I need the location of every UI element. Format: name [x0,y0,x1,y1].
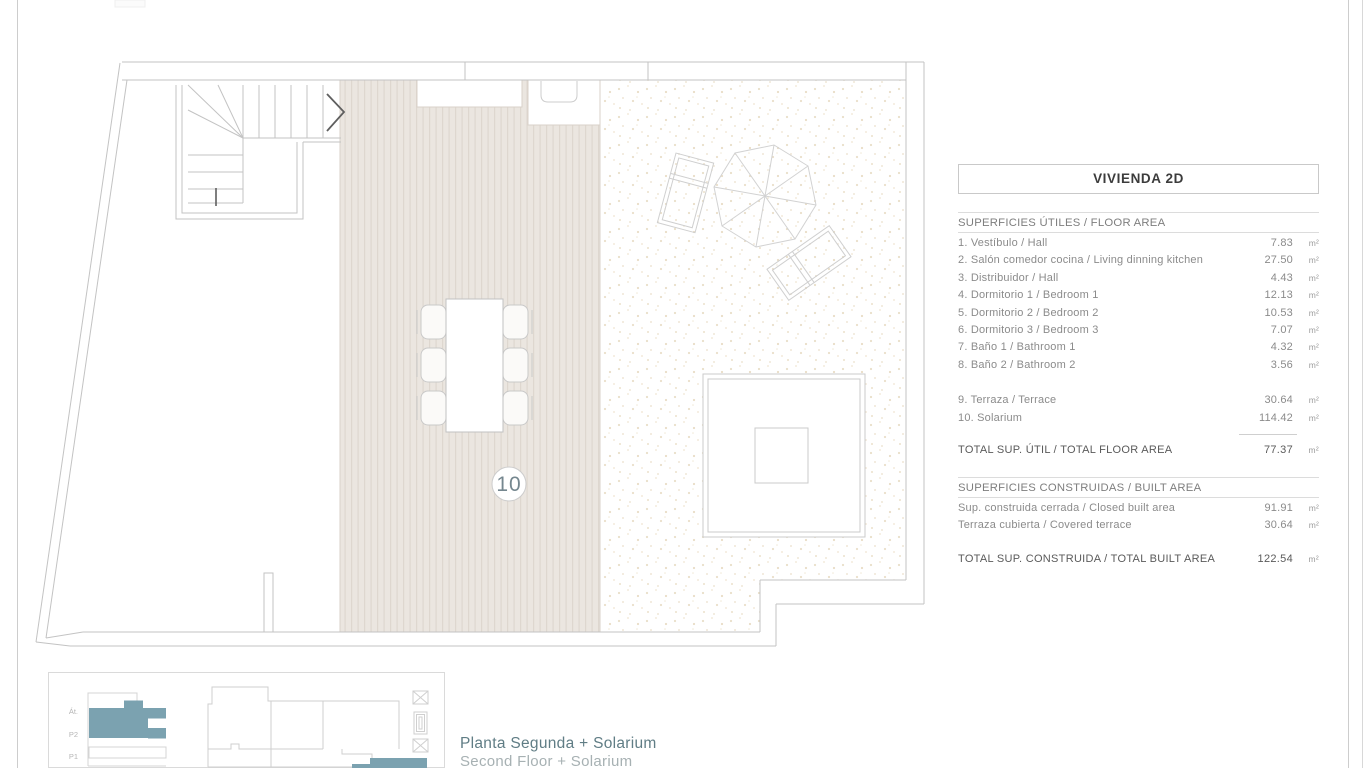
outdoor-area-rows: 9. Terraza / Terrace 30.64 m² 10. Solari… [958,390,1319,427]
shower-tray [541,81,577,102]
table-row: Terraza cubierta / Covered terrace 30.64… [958,517,1319,534]
built-area-header: SUPERFICIES CONSTRUIDAS / BUILT AREA [958,478,1319,498]
built-area-section: SUPERFICIES CONSTRUIDAS / BUILT AREA Sup… [958,477,1319,575]
total-floor-area-row: TOTAL SUP. ÚTIL / TOTAL FLOOR AREA 77.37… [958,435,1319,466]
floor-area-rows: 1. Vestíbulo / Hall 7.83 m² 2. Salón com… [958,233,1319,374]
solarium-number-badge: 10 [492,467,526,501]
skylight [703,374,865,537]
table-row: 2. Salón comedor cocina / Living dinning… [958,252,1319,269]
terrace-floor [603,80,906,632]
table-row: 8. Baño 2 / Bathroom 2 3.56 m² [958,357,1319,374]
floor-label-atico: Át. [69,707,78,716]
mini-location-plan: Át. P2 P1 [49,673,445,768]
table-row: 5. Dormitorio 2 / Bedroom 2 10.53 m² [958,305,1319,322]
table-row: 1. Vestíbulo / Hall 7.83 m² [958,235,1319,252]
table-row: 10. Solarium 114.42 m² [958,410,1319,427]
dwelling-title: VIVIENDA 2D [958,164,1319,194]
table-row: 3. Distribuidor / Hall 4.43 m² [958,270,1319,287]
floor-area-header: SUPERFICIES ÚTILES / FLOOR AREA [958,213,1319,233]
chairs-left [417,305,446,425]
table-row: 7. Baño 1 / Bathroom 1 4.32 m² [958,339,1319,356]
table-row: Sup. construida cerrada / Closed built a… [958,500,1319,517]
table-row: 9. Terraza / Terrace 30.64 m² [958,392,1319,409]
caption-english: Second Floor + Solarium [460,753,657,768]
solarium-number: 10 [496,473,521,496]
total-built-area-row: TOTAL SUP. CONSTRUIDA / TOTAL BUILT AREA… [958,544,1319,575]
floor-label-p2: P2 [69,730,78,739]
floor-label-p1: P1 [69,752,78,761]
pillar-notch [264,573,273,632]
table-row: 4. Dormitorio 1 / Bedroom 1 12.13 m² [958,287,1319,304]
floor-plan-sheet: 10 Át. P2 P1 [0,0,1366,768]
caption-spanish: Planta Segunda + Solarium [460,735,657,753]
built-area-rows: Sup. construida cerrada / Closed built a… [958,498,1319,535]
area-table-panel: VIVIENDA 2D SUPERFICIES ÚTILES / FLOOR A… [958,164,1319,575]
chairs-right [503,305,532,425]
table-row: 6. Dormitorio 3 / Bedroom 3 7.07 m² [958,322,1319,339]
dining-table [446,299,503,432]
dining-set [417,299,532,432]
stairs [176,85,344,219]
floor-area-section: SUPERFICIES ÚTILES / FLOOR AREA 1. Vestí… [958,212,1319,466]
top-edge-mark [115,0,145,7]
plan-caption: Planta Segunda + Solarium Second Floor +… [460,735,657,768]
